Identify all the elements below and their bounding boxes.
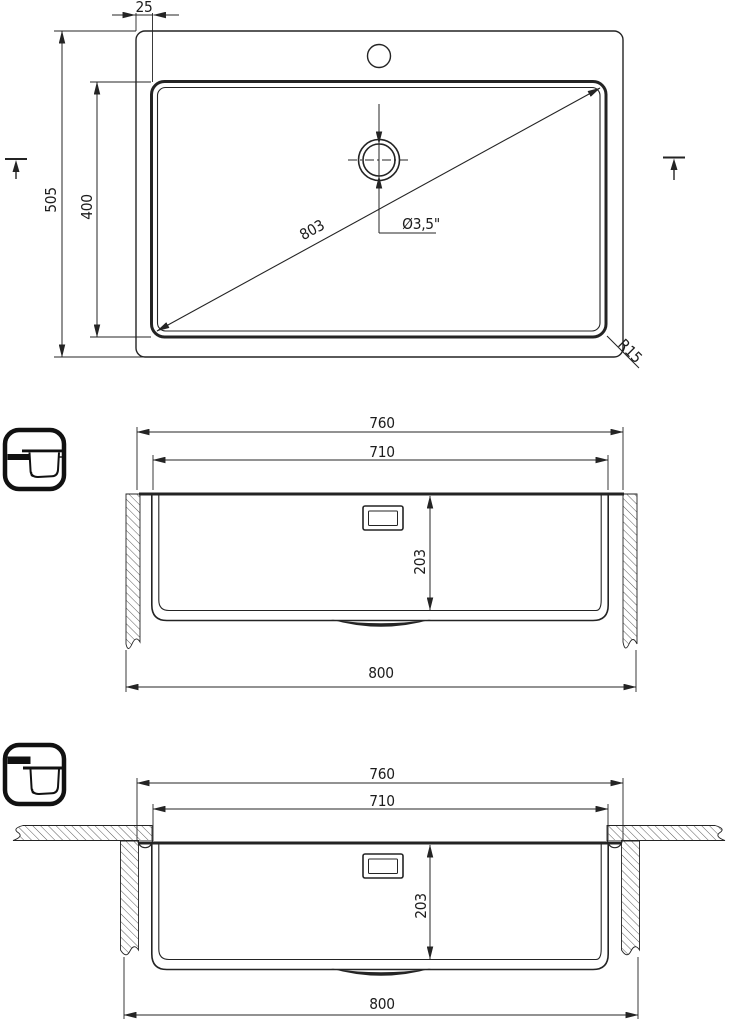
top-mount-icon	[2, 427, 68, 493]
section-flushmount-group	[13, 778, 725, 1019]
tap-hole	[368, 45, 391, 68]
technical-drawing: 25 505 400 803 Ø3,5" R15 760 710 203 800…	[0, 0, 738, 1020]
drawing-linework	[0, 0, 738, 1020]
dim-label-203-b: 203	[412, 893, 430, 919]
counter-strip-left	[13, 826, 152, 841]
dim-label-760-b: 760	[369, 765, 395, 783]
dim-label-drain: Ø3,5"	[402, 215, 440, 233]
dim-label-rim-25: 25	[135, 0, 152, 16]
counter-cut-left	[126, 494, 140, 649]
counter-cut-right-2	[622, 841, 640, 955]
section-mark-left	[5, 159, 27, 179]
dim-label-400: 400	[78, 194, 96, 220]
dim-label-760-a: 760	[369, 414, 395, 432]
top-view-group	[5, 13, 685, 368]
counter-cut-right	[623, 494, 637, 648]
dim-label-203-a: 203	[411, 549, 429, 575]
section-topmount-group	[126, 427, 637, 692]
dim-label-800-a: 800	[368, 664, 394, 682]
counter-cut-left-2	[121, 841, 139, 955]
dim-label-710-a: 710	[369, 443, 395, 461]
section-mark-right	[663, 158, 685, 181]
dim-label-710-b: 710	[369, 792, 395, 810]
dim-label-505: 505	[42, 187, 60, 213]
counter-strip-right	[607, 826, 725, 841]
flush-mount-icon	[2, 742, 68, 808]
dim-label-800-b: 800	[369, 995, 395, 1013]
